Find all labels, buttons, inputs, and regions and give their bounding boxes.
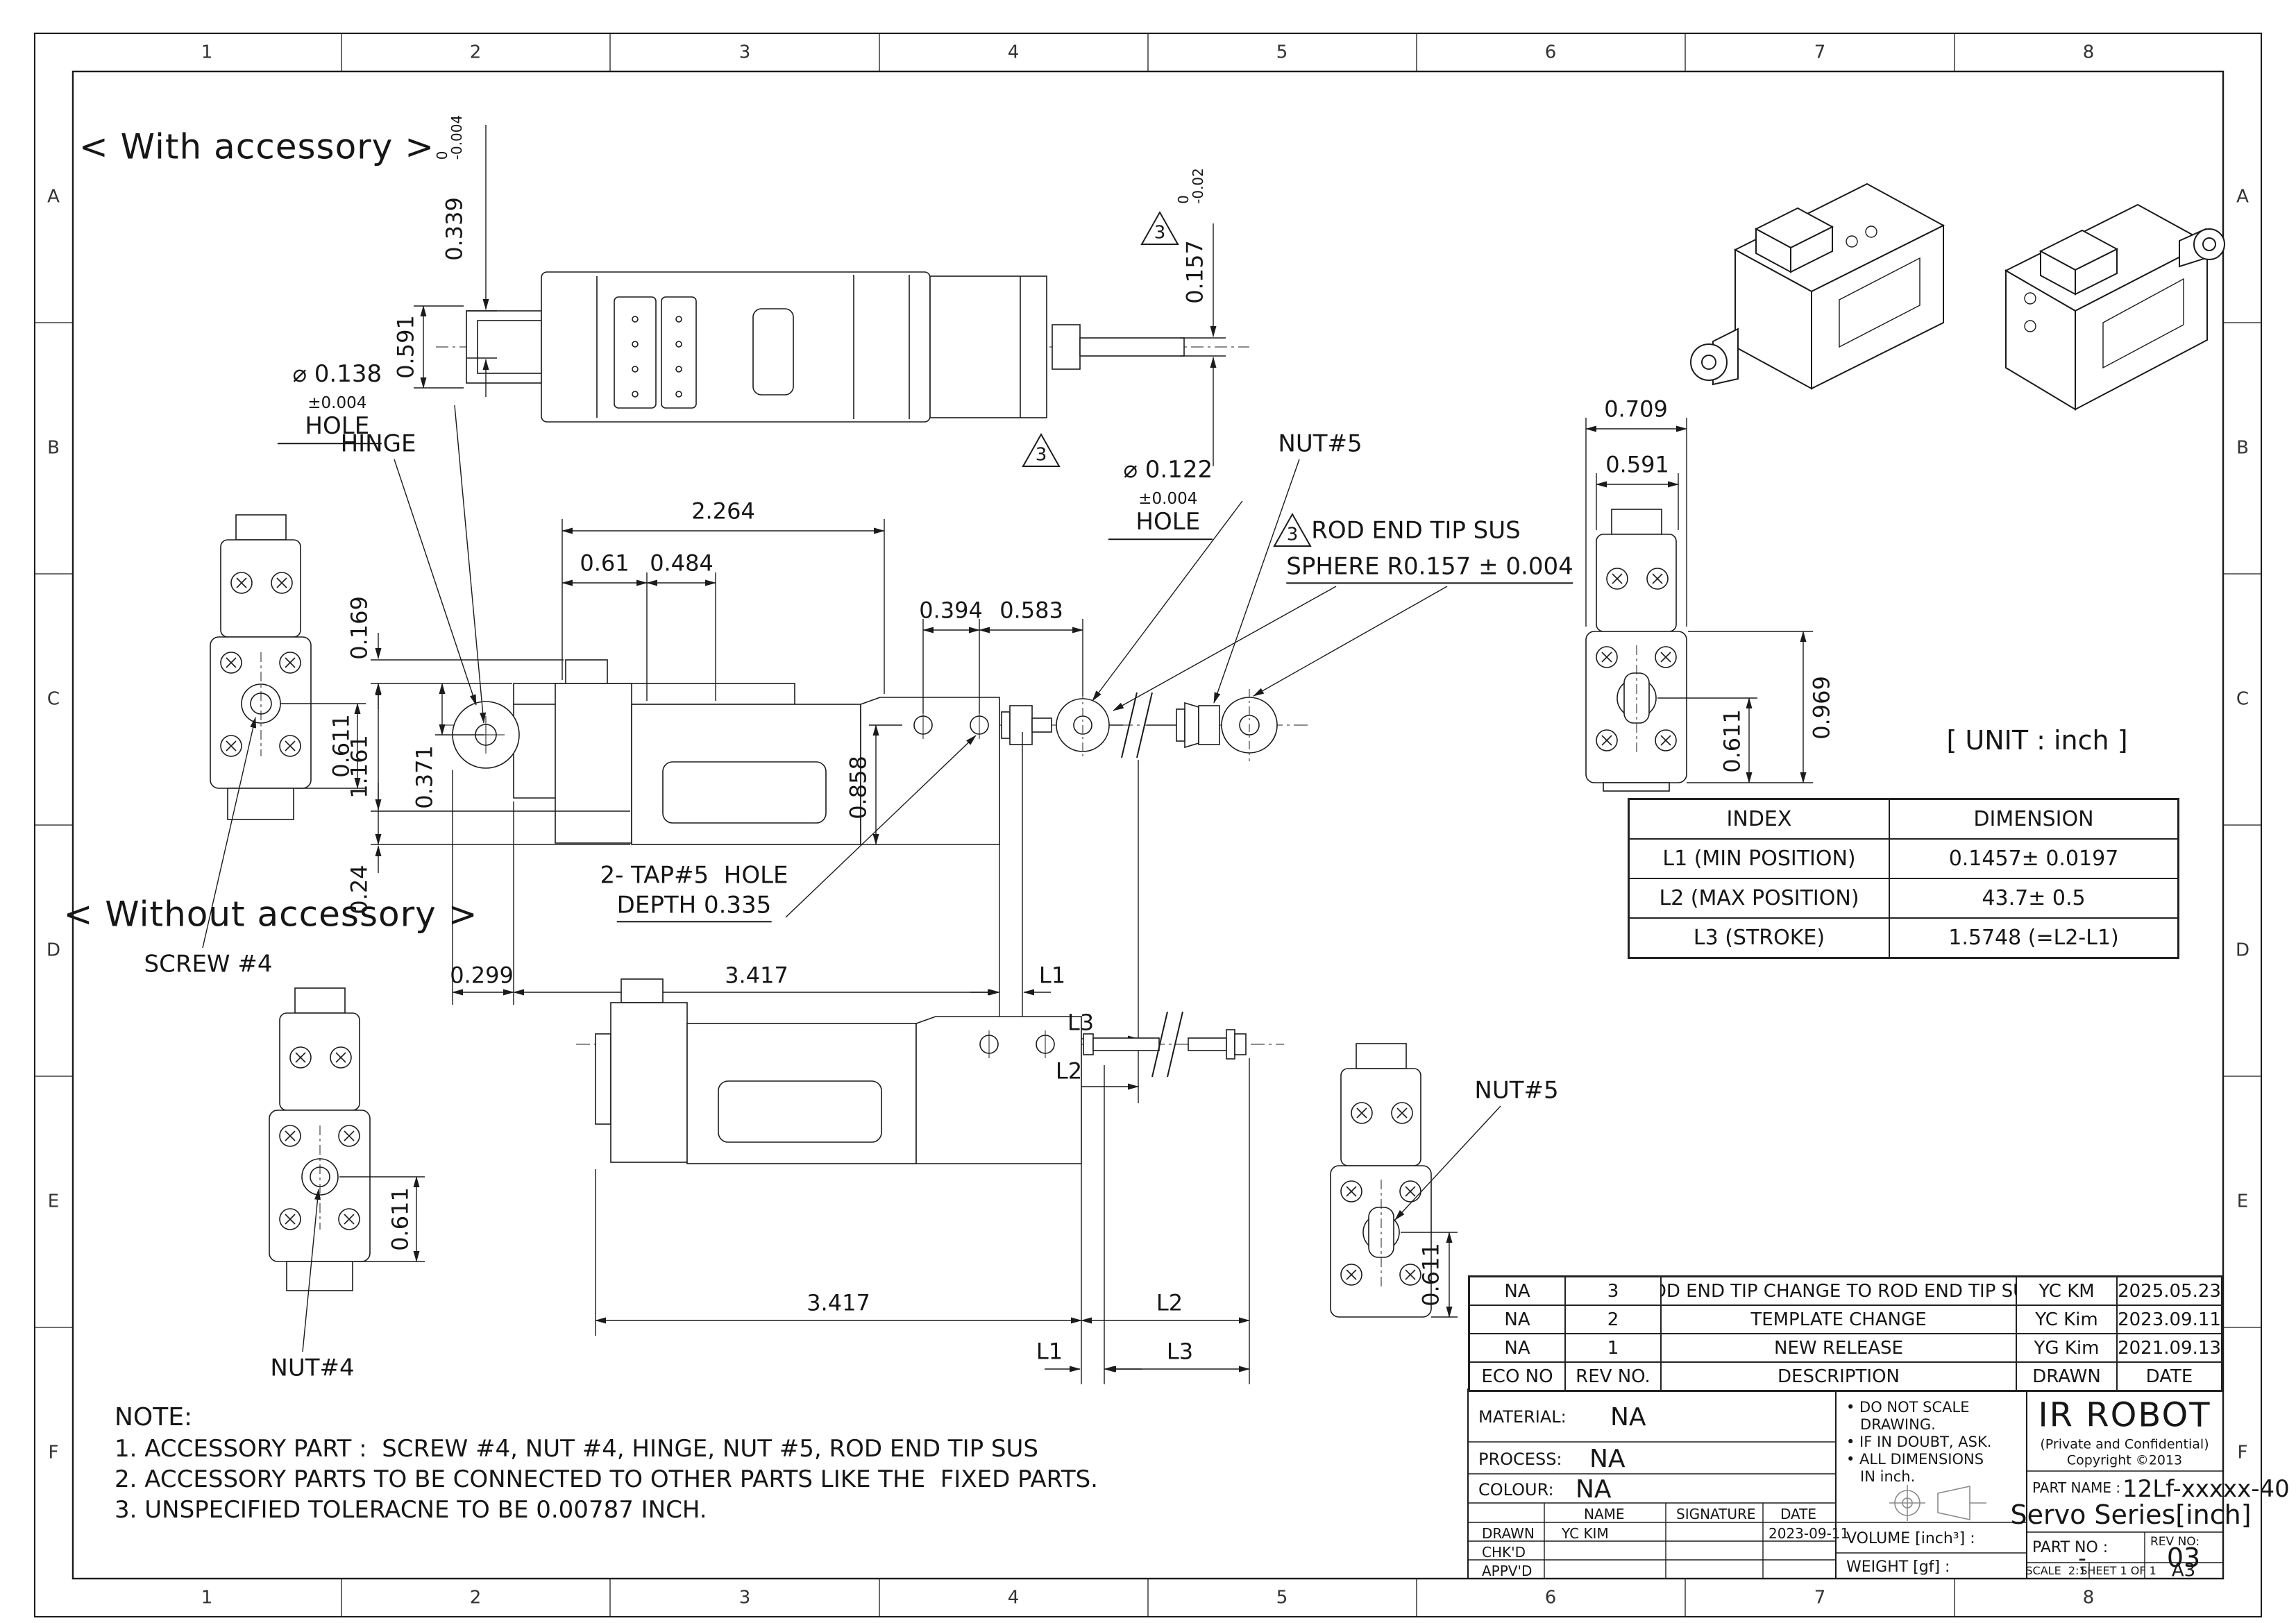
- dim-L2-without: L2: [1156, 1291, 1183, 1315]
- material-label: MATERIAL:: [1478, 1407, 1567, 1427]
- dim-L1-without: L1: [1036, 1339, 1063, 1363]
- drawn-name: YC KIM: [1562, 1525, 1609, 1542]
- scale-label: SCALE 2:1: [2025, 1565, 2086, 1577]
- zone-col-6: 6: [1545, 43, 1557, 63]
- zone-col-3b: 3: [739, 1588, 751, 1608]
- hole-dia: ⌀ 0.122: [1124, 457, 1213, 484]
- zone-row-e2: E: [2237, 1192, 2248, 1212]
- callout-hole-0122: ⌀ 0.122 ±0.004 HOLE: [1108, 432, 1213, 540]
- note-title: NOTE:: [115, 1403, 192, 1431]
- tol-upper: 0: [1176, 195, 1191, 204]
- zone-row-f2: F: [2238, 1443, 2248, 1463]
- index-l3-value: 1.5748 (=L2-L1): [1889, 918, 2178, 958]
- dim-0591-top: 0.591: [394, 315, 418, 379]
- zone-row-a2: A: [2236, 187, 2249, 207]
- zone-col-4: 4: [1008, 43, 1020, 63]
- weight-label: WEIGHT [gf] :: [1846, 1558, 1950, 1576]
- dim-0299: 0.299: [450, 963, 514, 987]
- end-view-right-with: [1586, 509, 1687, 791]
- index-l1-value: 0.1457± 0.0197: [1889, 839, 2178, 878]
- process-value: NA: [1589, 1445, 1626, 1473]
- tol-lower: -0.004: [450, 115, 464, 160]
- dim-0591-side: 0.591: [1605, 452, 1669, 477]
- hole-dia: ⌀ 0.138: [293, 361, 382, 389]
- index-header: INDEX: [1629, 799, 1889, 839]
- index-table: INDEX DIMENSION L1 (MIN POSITION) 0.1457…: [1628, 798, 2179, 959]
- zone-col-5b: 5: [1276, 1588, 1288, 1608]
- zone-row-c: C: [47, 690, 60, 710]
- callout-nut4: NUT#4: [270, 1355, 354, 1381]
- revision-table: NA 3 ROD END TIP CHANGE TO ROD END TIP S…: [1468, 1275, 2223, 1392]
- tb-note-line-5: IN inch.: [1846, 1468, 1915, 1485]
- callout-nut5-without: NUT#5: [1474, 1078, 1558, 1103]
- dim-0583: 0.583: [999, 598, 1063, 622]
- projection-symbol: [1889, 1485, 1986, 1521]
- rev-header-no: REV NO.: [1565, 1362, 1661, 1391]
- end-view-left-without: [269, 988, 370, 1291]
- zone-row-c2: C: [2236, 690, 2249, 710]
- process-label: PROCESS:: [1478, 1450, 1562, 1469]
- rev-eco: NA: [1469, 1305, 1565, 1334]
- zone-col-2: 2: [470, 43, 482, 63]
- zone-row-d: D: [47, 941, 60, 961]
- drawn-label: DRAWN: [1482, 1525, 1535, 1542]
- side-view-without: [576, 979, 1284, 1164]
- part-series-value: Servo Series[inch]: [2010, 1501, 2251, 1530]
- drawing-sheet: 1 2 3 4 5 6 7 8 1 2 3 4 5 6 7 8 A B C D …: [0, 0, 2296, 1623]
- zone-row-d2: D: [2236, 941, 2249, 961]
- rev-eco: NA: [1469, 1277, 1565, 1305]
- zone-col-4b: 4: [1008, 1588, 1020, 1608]
- unit-note: [ UNIT : inch ]: [1946, 726, 2127, 756]
- callout-rodend-1: ROD END TIP SUS: [1311, 518, 1520, 543]
- rev-date: 2025.05.23: [2117, 1277, 2222, 1305]
- dim-0611-endleft: 0.611: [329, 714, 353, 778]
- zone-row-a: A: [47, 187, 60, 207]
- top-view: [436, 272, 1249, 422]
- dim-0969: 0.969: [1809, 676, 1834, 740]
- rev-desc: TEMPLATE CHANGE: [1661, 1305, 2016, 1334]
- sheet-label: SHEET 1 OF 1: [2080, 1565, 2156, 1577]
- tb-note-line-1: • DO NOT SCALE: [1846, 1399, 1970, 1416]
- dim-0157: 0.157: [1183, 240, 1207, 304]
- dim-3417-without: 3.417: [807, 1291, 870, 1315]
- rev-header-desc: DESCRIPTION: [1661, 1362, 2016, 1391]
- zone-col-7b: 7: [1814, 1588, 1826, 1608]
- dim-0157-tol: 0 -0.02: [1176, 168, 1206, 204]
- callout-hole-0138: ⌀ 0.138 ±0.004 HOLE: [278, 336, 382, 444]
- flag-3-hole122: 3: [1036, 445, 1047, 466]
- drawn-date: 2023-09-11: [1769, 1525, 1849, 1542]
- material-value: NA: [1610, 1403, 1646, 1431]
- dim-061: 0.61: [580, 551, 629, 575]
- dim-L1-with: L1: [1039, 963, 1065, 987]
- zone-row-f: F: [49, 1443, 59, 1463]
- flag-3-topview: 3: [1154, 223, 1166, 244]
- rev-header-drawn: DRAWN: [2016, 1362, 2117, 1391]
- tb-note-line-4: • ALL DIMENSIONS: [1846, 1451, 1984, 1468]
- rev-no: 3: [1565, 1277, 1661, 1305]
- zone-col-7: 7: [1814, 43, 1826, 63]
- rev-desc: NEW RELEASE: [1661, 1334, 2016, 1362]
- dim-0339-tol: 0 -0.004: [435, 115, 464, 160]
- rev-desc: ROD END TIP CHANGE TO ROD END TIP SUS: [1661, 1277, 2016, 1305]
- dim-0611-nut4view: 0.611: [388, 1187, 412, 1251]
- zone-col-2b: 2: [470, 1588, 482, 1608]
- dim-0371: 0.371: [412, 745, 437, 809]
- rev-date: 2023.09.11: [2117, 1305, 2222, 1334]
- confidential-note: (Private and Confidential): [2040, 1438, 2209, 1452]
- zone-col-8b: 8: [2083, 1588, 2095, 1608]
- dim-2264: 2.264: [691, 499, 755, 523]
- index-l1: L1 (MIN POSITION): [1629, 839, 1889, 878]
- part-name-value: 12Lf-xxxxx-40: [2122, 1475, 2290, 1503]
- dim-L2-with: L2: [1056, 1059, 1082, 1083]
- part-no-label: PART NO :: [2032, 1539, 2108, 1556]
- rev-no: 2: [1565, 1305, 1661, 1334]
- tol-upper: 0: [435, 151, 450, 160]
- callout-nut5-with: NUT#5: [1278, 431, 1362, 457]
- heading-without-accessory: < Without accessory >: [63, 896, 478, 934]
- signature-header: SIGNATURE: [1676, 1506, 1756, 1522]
- colour-label: COLOUR:: [1478, 1480, 1554, 1499]
- dim-024: 0.24: [347, 865, 371, 914]
- zone-col-5: 5: [1276, 43, 1288, 63]
- callout-hinge: HINGE: [341, 431, 416, 457]
- zone-row-b2: B: [2236, 439, 2249, 459]
- zone-col-1b: 1: [201, 1588, 213, 1608]
- chkd-label: CHK'D: [1482, 1544, 1526, 1561]
- rev-header-eco: ECO NO: [1469, 1362, 1565, 1391]
- paper-size: A3: [2172, 1561, 2195, 1581]
- hole-suffix: HOLE: [1136, 508, 1200, 536]
- appvd-label: APPV'D: [1482, 1563, 1532, 1579]
- index-l2-value: 43.7± 0.5: [1889, 878, 2178, 918]
- zone-col-8: 8: [2083, 43, 2095, 63]
- dimension-header: DIMENSION: [1889, 799, 2178, 839]
- rev-header-date: DATE: [2117, 1362, 2222, 1391]
- dim-L3-with: L3: [1067, 1010, 1094, 1035]
- rev-drawn: YC Kim: [2016, 1305, 2117, 1334]
- dim-0611-nut5view: 0.611: [1419, 1243, 1443, 1307]
- callout-screw4: SCREW #4: [144, 951, 273, 977]
- tb-note-line-3: • IF IN DOUBT, ASK.: [1846, 1434, 1991, 1450]
- copyright-note: Copyright ©2013: [2067, 1454, 2182, 1468]
- zone-row-e: E: [48, 1192, 59, 1212]
- index-l3: L3 (STROKE): [1629, 918, 1889, 958]
- heading-with-accessory: < With accessory >: [79, 128, 434, 167]
- isometric-view-left: [1691, 184, 1943, 389]
- rev-no: 1: [1565, 1334, 1661, 1362]
- rev-eco: NA: [1469, 1334, 1565, 1362]
- zone-row-b: B: [47, 439, 60, 459]
- part-name-label: PART NAME :: [2032, 1479, 2120, 1496]
- dim-3417-with: 3.417: [725, 963, 788, 987]
- note-item-2: 2. ACCESSORY PARTS TO BE CONNECTED TO OT…: [115, 1465, 1098, 1493]
- end-view-left-with: [210, 515, 311, 819]
- volume-label: VOLUME [inch³] :: [1846, 1530, 1975, 1547]
- rev-date: 2021.09.13: [2117, 1334, 2222, 1362]
- tol-lower: -0.02: [1191, 168, 1206, 204]
- dim-0169: 0.169: [347, 596, 371, 660]
- callout-rodend-2: SPHERE R0.157 ± 0.004: [1286, 554, 1573, 584]
- end-view-right-without: [1331, 1044, 1431, 1317]
- note-item-1: 1. ACCESSORY PART : SCREW #4, NUT #4, HI…: [115, 1435, 1038, 1463]
- zone-col-1: 1: [201, 43, 213, 63]
- company-name: IR ROBOT: [2038, 1397, 2211, 1434]
- callout-tap-line1: 2- TAP#5 HOLE: [600, 863, 788, 888]
- name-header: NAME: [1584, 1506, 1625, 1522]
- dim-0709: 0.709: [1604, 397, 1668, 421]
- dim-0858: 0.858: [846, 756, 870, 819]
- dim-0394: 0.394: [919, 598, 983, 622]
- dim-0611-endright: 0.611: [1720, 709, 1744, 773]
- dim-0484: 0.484: [650, 551, 714, 575]
- note-item-3: 3. UNSPECIFIED TOLERACNE TO BE 0.00787 I…: [115, 1496, 707, 1524]
- hole-tol: ±0.004: [307, 394, 366, 412]
- hole-tol: ±0.004: [1138, 490, 1197, 508]
- rev-drawn: YG Kim: [2016, 1334, 2117, 1362]
- colour-value: NA: [1576, 1475, 1612, 1504]
- zone-col-6b: 6: [1545, 1588, 1557, 1608]
- flag-3-rodend: 3: [1287, 525, 1299, 545]
- dim-L3-without: L3: [1167, 1339, 1193, 1363]
- zone-col-3: 3: [739, 43, 751, 63]
- callout-tap-line2: DEPTH 0.335: [617, 892, 772, 922]
- isometric-view-right: [2006, 205, 2225, 409]
- tb-note-line-2: DRAWING.: [1846, 1416, 1936, 1433]
- rev-drawn: YC KM: [2016, 1277, 2117, 1305]
- side-view-with: [444, 660, 1312, 844]
- dim-0339: 0.339: [442, 197, 466, 261]
- date-header: DATE: [1780, 1506, 1816, 1522]
- index-l2: L2 (MAX POSITION): [1629, 878, 1889, 918]
